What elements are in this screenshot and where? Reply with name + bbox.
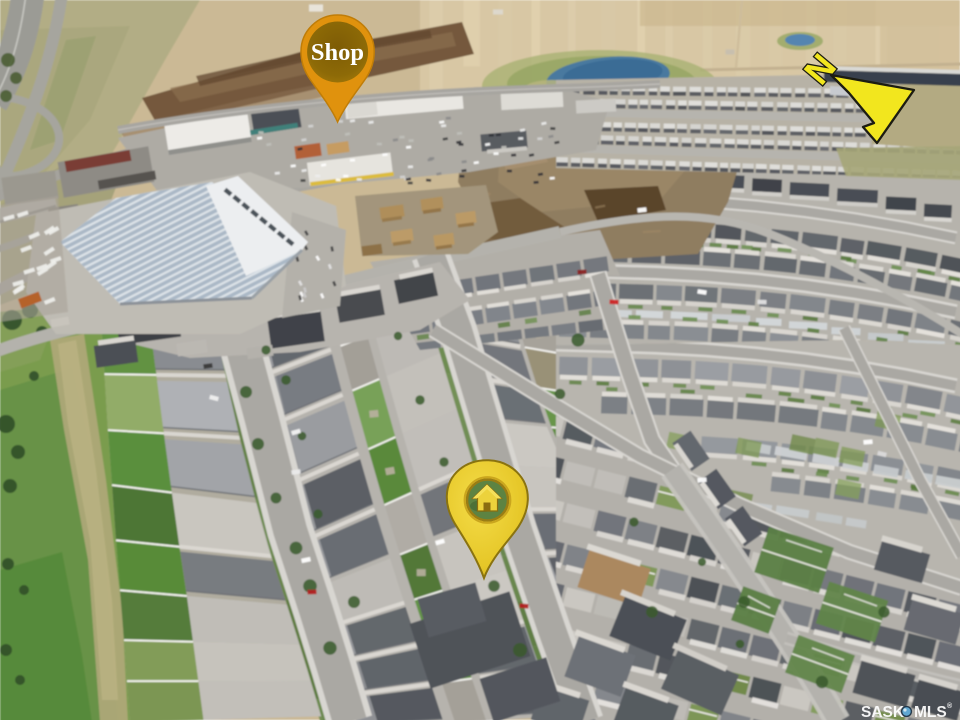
svg-text:SASK: SASK: [861, 704, 905, 720]
svg-text:®: ®: [947, 702, 953, 710]
svg-text:MLS: MLS: [914, 704, 947, 720]
svg-text:Shop: Shop: [311, 39, 364, 66]
